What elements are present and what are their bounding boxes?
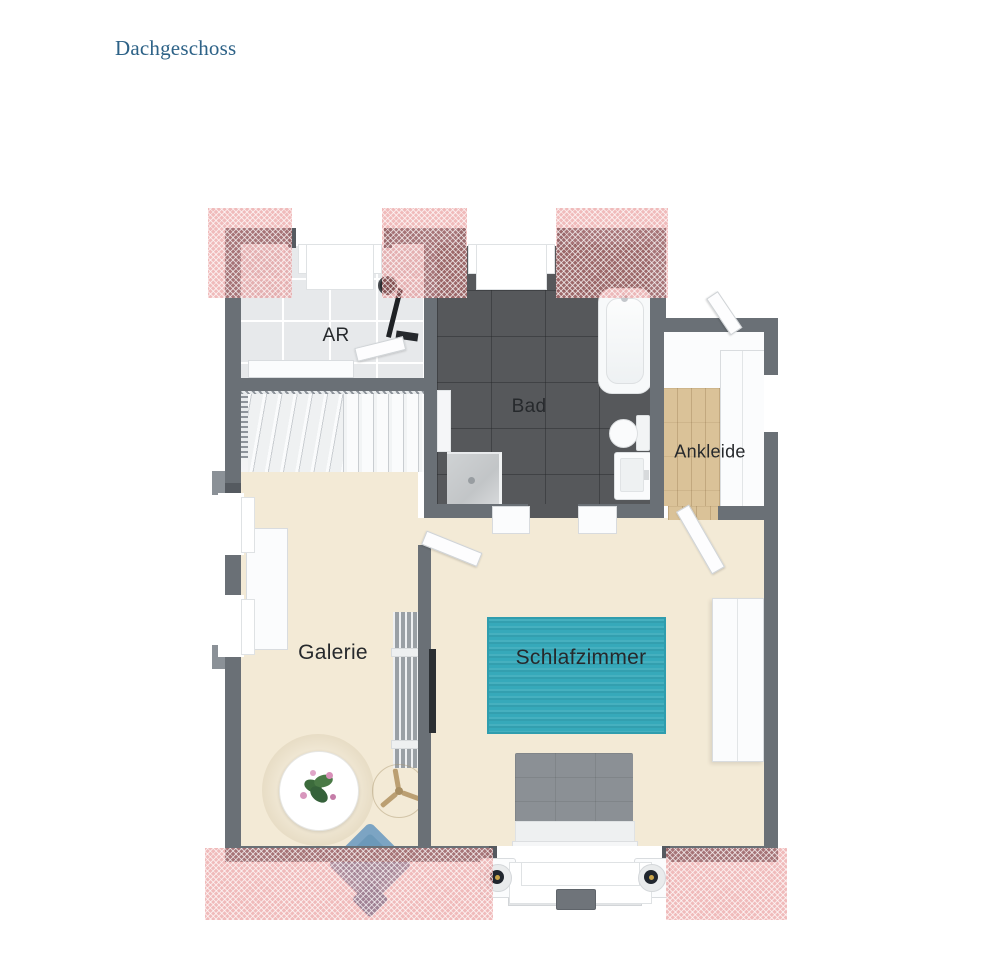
lamp-bulb	[495, 875, 500, 880]
room-label-galerie: Galerie	[298, 641, 368, 665]
table-plant	[296, 768, 340, 812]
window-top-right-sill	[476, 244, 547, 290]
toilet-bowl	[609, 419, 638, 448]
stair-railing-left	[241, 394, 248, 458]
exterior-sill-nub	[212, 471, 225, 495]
wall-ar-stairs	[241, 378, 437, 391]
floor-title: Dachgeschoss	[115, 36, 236, 61]
wall-tv	[429, 649, 436, 733]
room-label-schlafzimmer: Schlafzimmer	[516, 646, 647, 670]
sink	[614, 452, 652, 500]
ankleide-wardrobe	[720, 350, 766, 510]
floorplan-page: Dachgeschoss	[0, 0, 1000, 954]
window-bottom-sill	[521, 862, 640, 886]
sink-tap	[644, 470, 649, 480]
wall-left-3	[225, 657, 241, 862]
window-top-right	[466, 224, 557, 246]
room-label-ankleide: Ankleide	[674, 442, 745, 463]
shower-drain	[468, 477, 475, 484]
bad-cabinet	[437, 390, 451, 452]
wardrobe-seam	[742, 351, 743, 509]
fan-blade	[393, 768, 401, 789]
ar-shelf	[248, 360, 354, 378]
bathtub-basin	[606, 298, 644, 384]
wardrobe-seam	[737, 599, 738, 761]
wall-left-2	[225, 555, 241, 595]
roof-slope-marker	[205, 848, 493, 920]
bad-door-jamb-right	[578, 506, 617, 534]
table-lamp-right	[638, 864, 666, 892]
stair-straight-steps	[343, 394, 424, 472]
roof-slope-marker	[208, 208, 292, 298]
wall-bad-left	[424, 391, 437, 518]
bad-door-jamb-left	[492, 506, 530, 534]
floorplan-canvas: AR Bad Ankleide Galerie Schlafzimmer	[0, 0, 1000, 954]
plant-flower	[330, 794, 336, 800]
room-label-ar: AR	[323, 325, 350, 347]
window-top-left-sill	[306, 244, 374, 290]
bathtub	[598, 288, 652, 394]
window-right	[764, 375, 788, 432]
sink-basin	[620, 458, 644, 492]
wall-right-1	[764, 318, 778, 375]
plant-flower	[326, 772, 333, 779]
shower-tray	[447, 452, 502, 508]
room-label-bad: Bad	[512, 396, 547, 418]
wall-right-2	[764, 432, 778, 862]
roof-slope-marker	[382, 208, 467, 298]
wall-cap	[225, 483, 241, 493]
window-left-lower-sill	[241, 599, 255, 655]
window-left-upper-sill	[241, 497, 255, 553]
area-rug	[487, 617, 666, 734]
plant-flower	[310, 770, 316, 776]
roof-slope-marker	[666, 848, 787, 920]
railing-shelf	[393, 612, 418, 768]
roof-slope-marker	[556, 208, 668, 298]
stair-winder-steps	[248, 394, 343, 472]
staircase	[241, 386, 424, 472]
wall-ankleide-bottom	[718, 506, 778, 520]
wall-ankleide-top	[652, 318, 778, 332]
lamp-bulb	[649, 875, 654, 880]
plant-flower	[300, 792, 307, 799]
fan-hub	[395, 787, 403, 795]
bed-blanket	[515, 753, 633, 823]
bedroom-wardrobe	[712, 598, 764, 762]
bad-door-gap	[528, 504, 578, 518]
window-top-left	[296, 224, 384, 246]
window-bench	[556, 889, 596, 910]
toilet-tank	[636, 415, 650, 451]
